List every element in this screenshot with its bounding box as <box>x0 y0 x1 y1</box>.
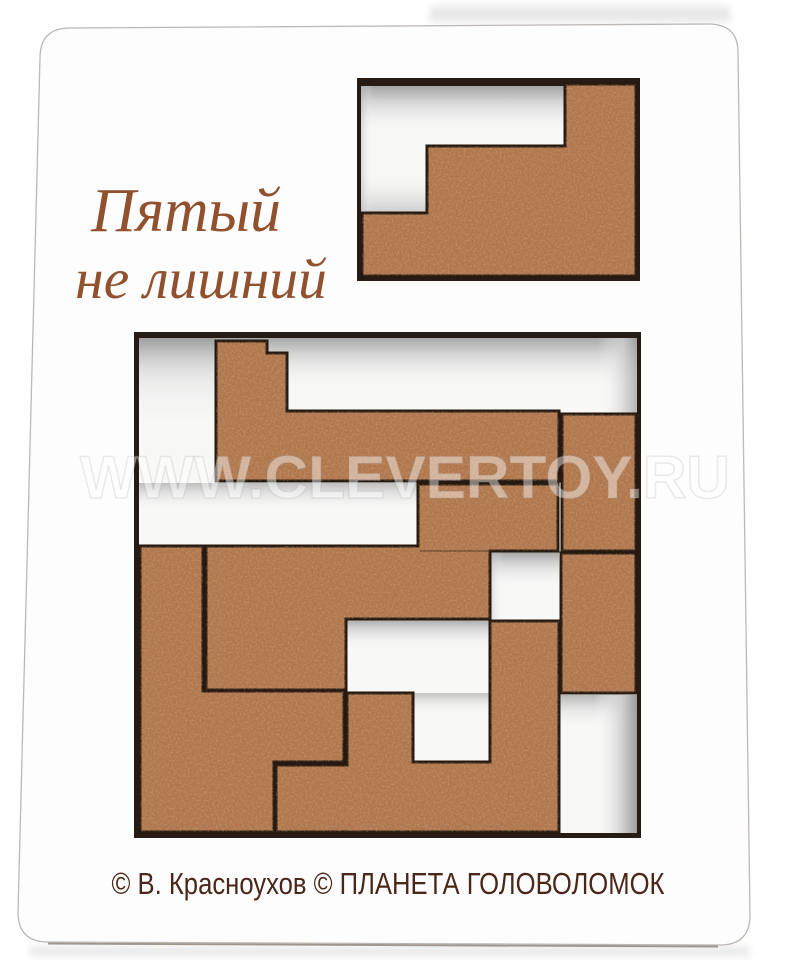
svg-text:WWW.CLEVERTOY.RU: WWW.CLEVERTOY.RU <box>80 444 730 511</box>
svg-text:не лишний: не лишний <box>75 248 327 311</box>
svg-text:© В. Красноухов © ПЛАНЕТА ГО: © В. Красноухов © ПЛАНЕТА ГОЛОВОЛОМОК <box>112 866 665 901</box>
svg-text:Пятый: Пятый <box>90 176 281 245</box>
